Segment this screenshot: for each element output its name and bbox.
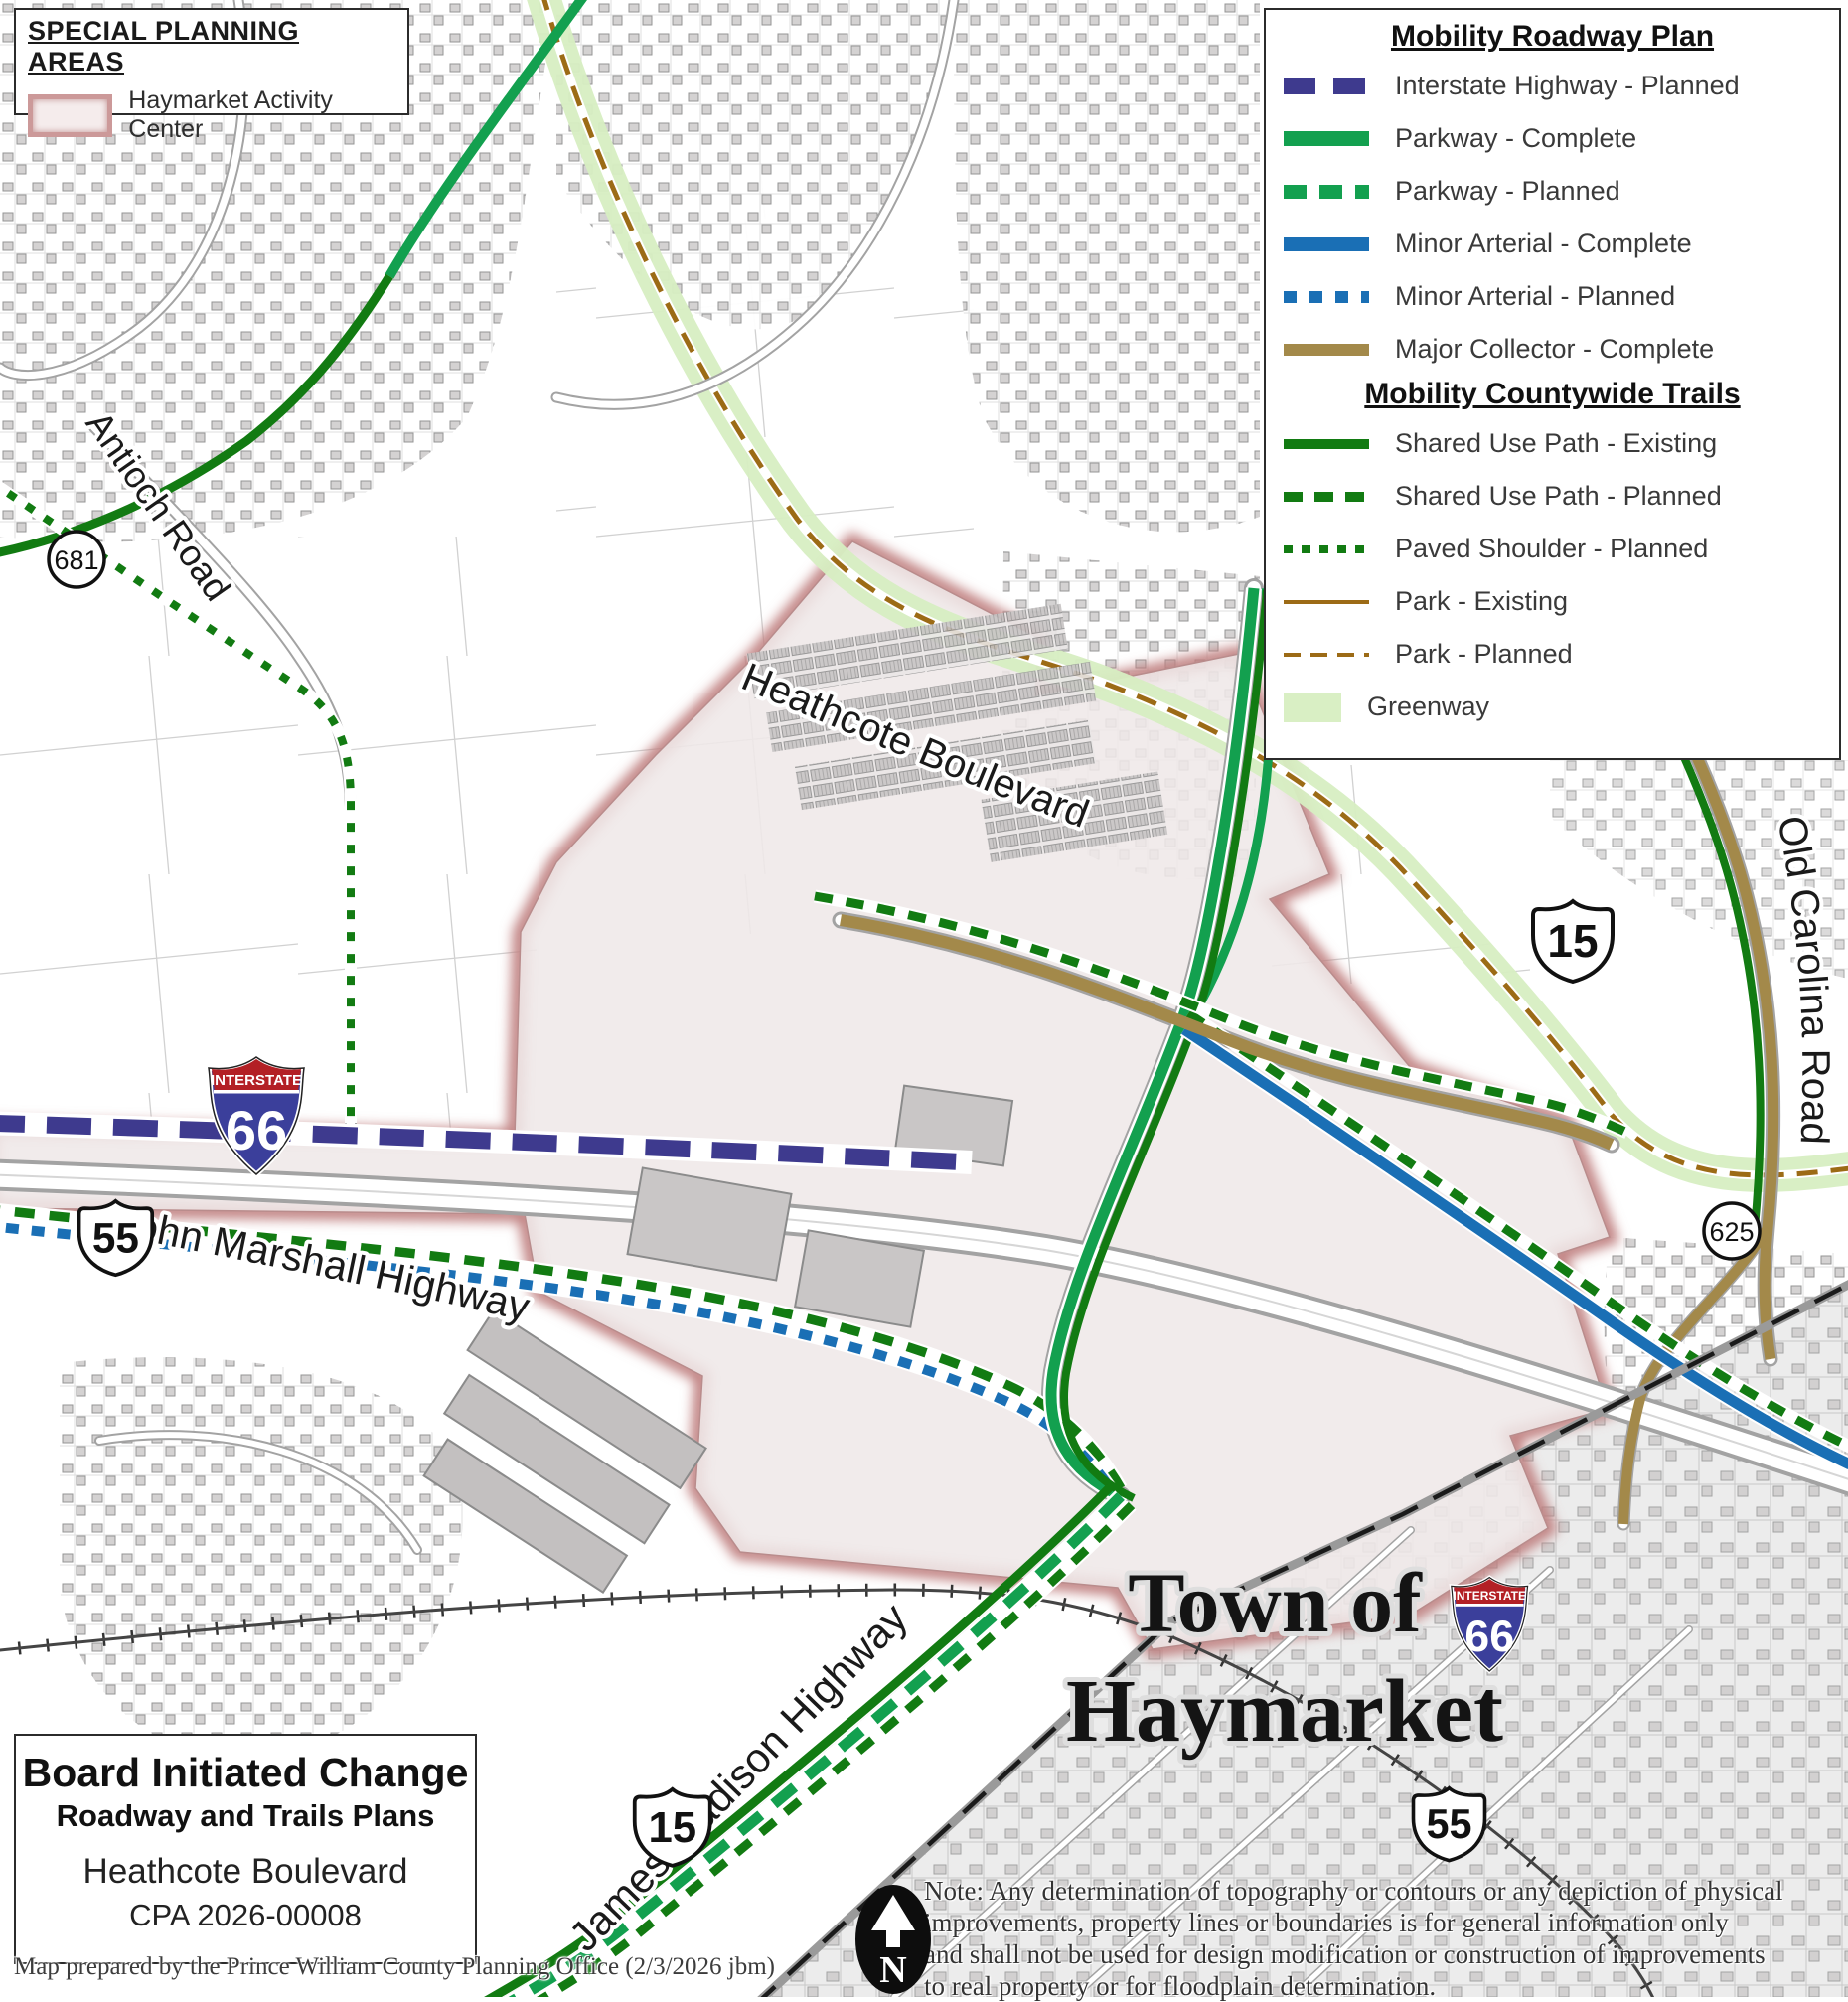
legend-label: Greenway: [1367, 692, 1489, 722]
legend-row: Park - Planned: [1266, 628, 1839, 681]
note-line: to real property or for floodplain deter…: [924, 1970, 1848, 2002]
map-credit: Map prepared by the Prince William Count…: [14, 1953, 775, 1981]
greenway-swatch-icon: [1284, 693, 1341, 722]
legend-label: Major Collector - Complete: [1395, 334, 1714, 365]
special-planning-title: SPECIAL PLANNING AREAS: [28, 16, 397, 77]
svg-text:681: 681: [54, 545, 98, 575]
svg-text:55: 55: [92, 1214, 139, 1261]
legend-row: Minor Arterial - Complete: [1266, 218, 1839, 270]
special-planning-areas-legend: SPECIAL PLANNING AREAS Haymarket Activit…: [14, 8, 409, 115]
note-line: improvements, property lines or boundari…: [924, 1907, 1848, 1938]
legend-row: Paved Shoulder - Planned: [1266, 523, 1839, 575]
legend-label: Interstate Highway - Planned: [1395, 71, 1740, 101]
paved-shoulder-planned-swatch-icon: [1284, 545, 1369, 553]
note-line: Note: Any determination of topography or…: [924, 1875, 1848, 1907]
north-arrow-icon: N: [852, 1884, 934, 1995]
legend-label: Minor Arterial - Complete: [1395, 229, 1692, 259]
legend-row: Minor Arterial - Planned: [1266, 270, 1839, 323]
route-shield-sr625: 625: [1704, 1203, 1760, 1259]
activity-center-swatch-icon: [28, 94, 112, 137]
shared-use-path-planned-swatch-icon: [1284, 492, 1369, 502]
legend-label: Park - Planned: [1395, 639, 1573, 670]
svg-text:15: 15: [1547, 915, 1598, 967]
legend-row: Greenway: [1266, 681, 1839, 733]
legend-row: Shared Use Path - Existing: [1266, 417, 1839, 470]
title-line2: Roadway and Trails Plans: [16, 1798, 475, 1834]
legend-row: Shared Use Path - Planned: [1266, 470, 1839, 523]
shared-use-path-existing-swatch-icon: [1284, 439, 1369, 449]
park-existing-swatch-icon: [1284, 600, 1369, 604]
town-label-line2: Haymarket: [1066, 1662, 1503, 1761]
legend-label: Park - Existing: [1395, 586, 1568, 617]
svg-text:66: 66: [226, 1099, 287, 1161]
countywide-trails-title: Mobility Countywide Trails: [1266, 378, 1839, 411]
svg-text:625: 625: [1709, 1217, 1754, 1247]
cpa-number: CPA 2026-00008: [16, 1898, 475, 1933]
legend-label: Parkway - Planned: [1395, 176, 1620, 207]
legend-label: Paved Shoulder - Planned: [1395, 534, 1708, 564]
legend-label: Parkway - Complete: [1395, 123, 1636, 154]
legend-row: Park - Existing: [1266, 575, 1839, 628]
disclaimer-note: Note: Any determination of topography or…: [924, 1875, 1848, 2002]
title-line1: Board Initiated Change: [16, 1750, 475, 1796]
legend-row: Interstate Highway - Planned: [1266, 60, 1839, 112]
legend-label: Shared Use Path - Existing: [1395, 428, 1717, 459]
interstate-planned-swatch-icon: [1284, 78, 1369, 94]
svg-text:INTERSTATE: INTERSTATE: [211, 1072, 302, 1089]
legend-row: Parkway - Complete: [1266, 112, 1839, 165]
mobility-legend: Mobility Roadway Plan Interstate Highway…: [1264, 8, 1841, 760]
major-collector-swatch-icon: [1284, 344, 1369, 356]
park-planned-swatch-icon: [1284, 653, 1369, 657]
svg-text:55: 55: [1426, 1801, 1471, 1847]
parkway-planned-swatch-icon: [1284, 185, 1369, 199]
map-title-block: Board Initiated Change Roadway and Trail…: [14, 1734, 477, 1964]
minor-arterial-planned-swatch-icon: [1284, 291, 1369, 303]
legend-row: Haymarket Activity Center: [28, 86, 397, 144]
legend-label: Shared Use Path - Planned: [1395, 481, 1722, 512]
parkway-complete-swatch-icon: [1284, 131, 1369, 146]
minor-arterial-complete-swatch-icon: [1284, 237, 1369, 251]
route-shield-sr681: 681: [49, 532, 104, 587]
legend-row: Parkway - Planned: [1266, 165, 1839, 218]
town-label-line1: Town of: [1128, 1555, 1423, 1650]
legend-row: Major Collector - Complete: [1266, 323, 1839, 376]
svg-text:INTERSTATE: INTERSTATE: [1453, 1589, 1526, 1603]
svg-text:15: 15: [648, 1803, 696, 1852]
svg-text:N: N: [879, 1949, 906, 1991]
roadway-plan-title: Mobility Roadway Plan: [1266, 20, 1839, 54]
title-line3: Heathcote Boulevard: [16, 1852, 475, 1892]
activity-center-label: Haymarket Activity Center: [128, 86, 397, 144]
svg-text:66: 66: [1464, 1612, 1514, 1661]
legend-label: Minor Arterial - Planned: [1395, 281, 1675, 312]
note-line: and shall not be used for design modific…: [924, 1938, 1848, 1970]
